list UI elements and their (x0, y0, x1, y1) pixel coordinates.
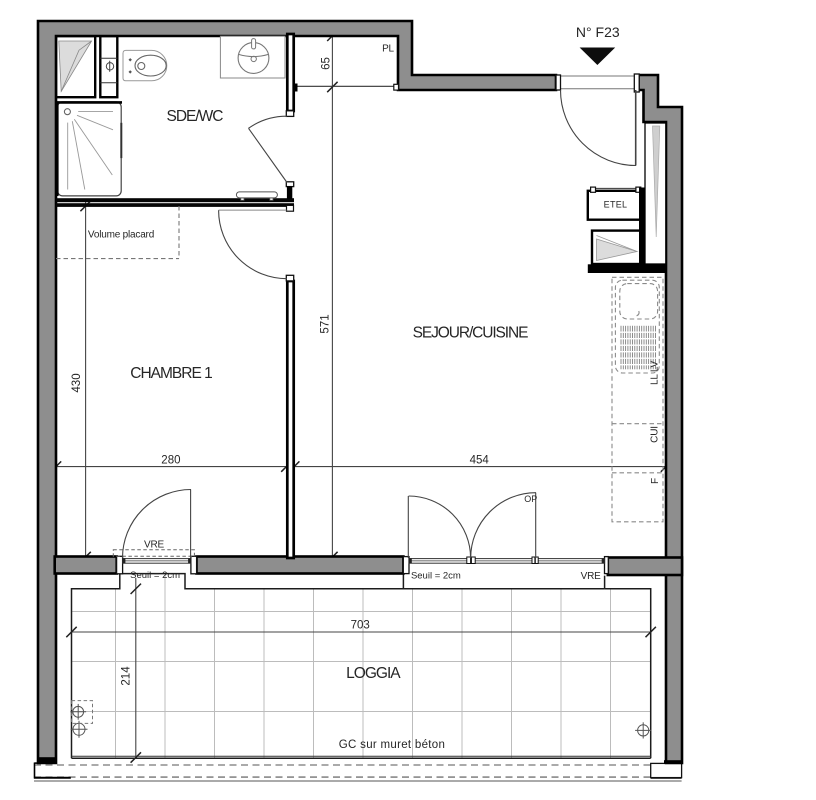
svg-text:LL LV: LL LV (649, 360, 660, 385)
svg-text:65: 65 (321, 57, 333, 70)
svg-text:Seuil = 2cm: Seuil = 2cm (411, 571, 461, 582)
svg-text:CHAMBRE 1: CHAMBRE 1 (130, 365, 212, 382)
svg-text:Volume placard: Volume placard (88, 230, 154, 241)
svg-text:N° F23: N° F23 (576, 24, 620, 40)
svg-text:454: 454 (470, 454, 490, 466)
svg-text:280: 280 (161, 454, 180, 466)
svg-text:430: 430 (71, 373, 83, 392)
svg-text:703: 703 (351, 619, 370, 631)
svg-text:LOGGIA: LOGGIA (346, 665, 401, 682)
svg-text:PL: PL (382, 44, 394, 55)
svg-text:214: 214 (121, 666, 133, 686)
svg-text:SDE/WC: SDE/WC (167, 108, 224, 125)
svg-text:GC sur muret béton: GC sur muret béton (339, 739, 445, 751)
svg-text:Seuil = 2cm: Seuil = 2cm (130, 570, 180, 581)
svg-text:SEJOUR/CUISINE: SEJOUR/CUISINE (413, 325, 528, 342)
svg-text:VRE: VRE (581, 571, 601, 582)
svg-text:CUI: CUI (649, 426, 660, 443)
svg-text:VRE: VRE (144, 540, 164, 551)
svg-text:F: F (650, 478, 661, 484)
svg-text:571: 571 (319, 314, 331, 333)
svg-text:ETEL: ETEL (604, 200, 628, 210)
svg-text:OP: OP (524, 494, 537, 504)
